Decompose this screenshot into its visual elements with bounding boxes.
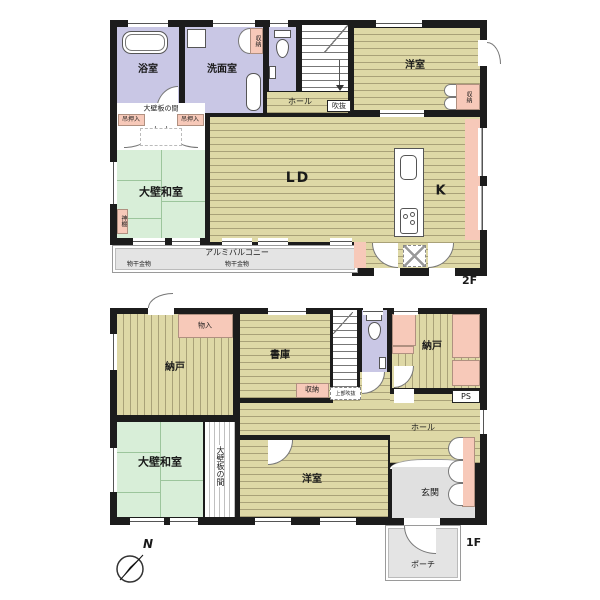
- stair-closet-label: 収納: [305, 387, 319, 394]
- washroom-label: 洗面室: [207, 65, 237, 75]
- bifold-door-western-bottom: [444, 97, 456, 110]
- compass-north-label: N: [143, 538, 153, 550]
- compass-icon: [113, 549, 151, 587]
- window: [380, 110, 424, 117]
- window: [363, 308, 383, 315]
- tatami-line: [117, 492, 160, 493]
- void-above-box: 上部吹抜: [330, 387, 361, 400]
- floor-hatch-area: [403, 245, 426, 267]
- door-opening: [429, 268, 455, 276]
- tatami-line: [117, 452, 160, 453]
- door-opening: [148, 308, 174, 315]
- shoe-closet: [462, 437, 475, 507]
- void-above-label: 上部吹抜: [335, 390, 355, 397]
- pipe-space-label: PS: [461, 392, 471, 401]
- closet-storage-right-br: [452, 360, 480, 386]
- alcove-1f-label: 大壁板の間: [216, 445, 224, 487]
- bathtub-inner: [125, 34, 165, 51]
- hanging-closet-left-label: 吊押入: [122, 117, 140, 123]
- door-swing-western-entry: [487, 42, 501, 64]
- western-2f-label: 洋室: [405, 61, 425, 71]
- window: [320, 518, 356, 525]
- closet-washroom-label: 収納: [254, 35, 260, 47]
- toilet-tank-2f: [274, 30, 291, 38]
- window: [268, 308, 306, 315]
- washstand: [187, 29, 206, 48]
- floor-label-2f: 2F: [462, 275, 477, 286]
- window: [110, 162, 117, 204]
- kitchen-counter-bottom: [354, 242, 366, 268]
- toilet-sink-2f: [269, 66, 276, 79]
- bathroom-label: 浴室: [138, 65, 158, 75]
- window: [270, 20, 288, 27]
- drying-fixture-left-label: 物干金物: [127, 262, 151, 268]
- window: [258, 238, 288, 245]
- closet-storage-right-tr: [452, 314, 480, 358]
- door-opening: [478, 40, 487, 66]
- ld-label: LD: [286, 171, 311, 185]
- window: [213, 20, 255, 27]
- closet-western-2f-label: 収納: [465, 91, 471, 103]
- tokonoma-dashed-area: [140, 128, 182, 146]
- window: [255, 518, 291, 525]
- window: [172, 238, 200, 245]
- balcony-label: アルミバルコニー: [205, 249, 269, 257]
- door-opening: [374, 268, 400, 276]
- stairs-1f-winder: [333, 312, 353, 334]
- window: [128, 20, 168, 27]
- japanese-2f-label: 大壁和室: [139, 187, 183, 198]
- drying-fixture-right-label: 物干金物: [225, 262, 249, 268]
- door-swing-storage-left: [148, 293, 173, 308]
- porch-label: ポーチ: [411, 561, 435, 569]
- western-1f-label: 洋室: [302, 475, 322, 485]
- closet-storage-right-tl: [392, 314, 416, 346]
- window: [222, 238, 252, 245]
- storage-left-label: 納戸: [165, 363, 185, 373]
- window: [110, 448, 117, 492]
- monoire-label: 物入: [198, 323, 212, 330]
- void-label: 吹抜: [332, 101, 346, 111]
- floorplan-canvas: アルミバルコニー 物干金物 物干金物 浴室 洗面室 収納 ホール 吹抜: [0, 0, 600, 600]
- floor-label-1f: 1F: [466, 537, 481, 548]
- stairs-2f-winder: [324, 25, 348, 53]
- kamidana-label: 神棚: [120, 215, 126, 227]
- window: [170, 518, 198, 525]
- pipe-space-box: PS: [452, 390, 480, 403]
- tatami-line: [161, 201, 205, 202]
- window: [478, 186, 487, 230]
- bathtub: [122, 31, 168, 54]
- stove-burner: [410, 220, 415, 225]
- tatami-line: [160, 422, 161, 517]
- kitchen-sink: [400, 155, 417, 180]
- stove: [400, 208, 418, 234]
- stove-burner: [403, 214, 408, 219]
- storage-right-label: 納戸: [422, 342, 442, 352]
- hall-1f: [240, 403, 480, 435]
- k-label: K: [435, 185, 446, 198]
- window: [478, 128, 487, 176]
- window: [110, 334, 117, 370]
- vanity-counter: [246, 73, 261, 111]
- window: [330, 238, 352, 245]
- stairs-direction-line: [339, 60, 340, 86]
- stove-burner: [410, 212, 415, 217]
- window: [376, 20, 422, 27]
- library-label: 書庫: [270, 351, 290, 361]
- window: [394, 308, 418, 315]
- japanese-1f-label: 大壁和室: [138, 457, 182, 468]
- room-ld: [210, 117, 354, 242]
- hall-1f-label: ホール: [411, 424, 435, 432]
- bifold-door-western-top: [444, 84, 456, 97]
- stairs-arrow-down-icon: [336, 85, 344, 91]
- tatami-line: [160, 480, 203, 481]
- window: [130, 518, 164, 525]
- hanging-closet-right-label: 吊押入: [181, 117, 199, 123]
- entrance-label: 玄関: [421, 490, 439, 499]
- alcove-2f-label: 大壁板の間: [144, 106, 179, 113]
- front-door-opening: [404, 518, 440, 525]
- door-opening: [394, 389, 414, 403]
- toilet-sink-1f: [379, 357, 386, 369]
- hall-2f-label: ホール: [288, 98, 312, 106]
- window: [480, 410, 487, 434]
- shelf-tiny-label-strip: [392, 346, 414, 354]
- void-label-box: 吹抜: [327, 100, 351, 112]
- window: [133, 238, 165, 245]
- tatami-line: [117, 180, 161, 181]
